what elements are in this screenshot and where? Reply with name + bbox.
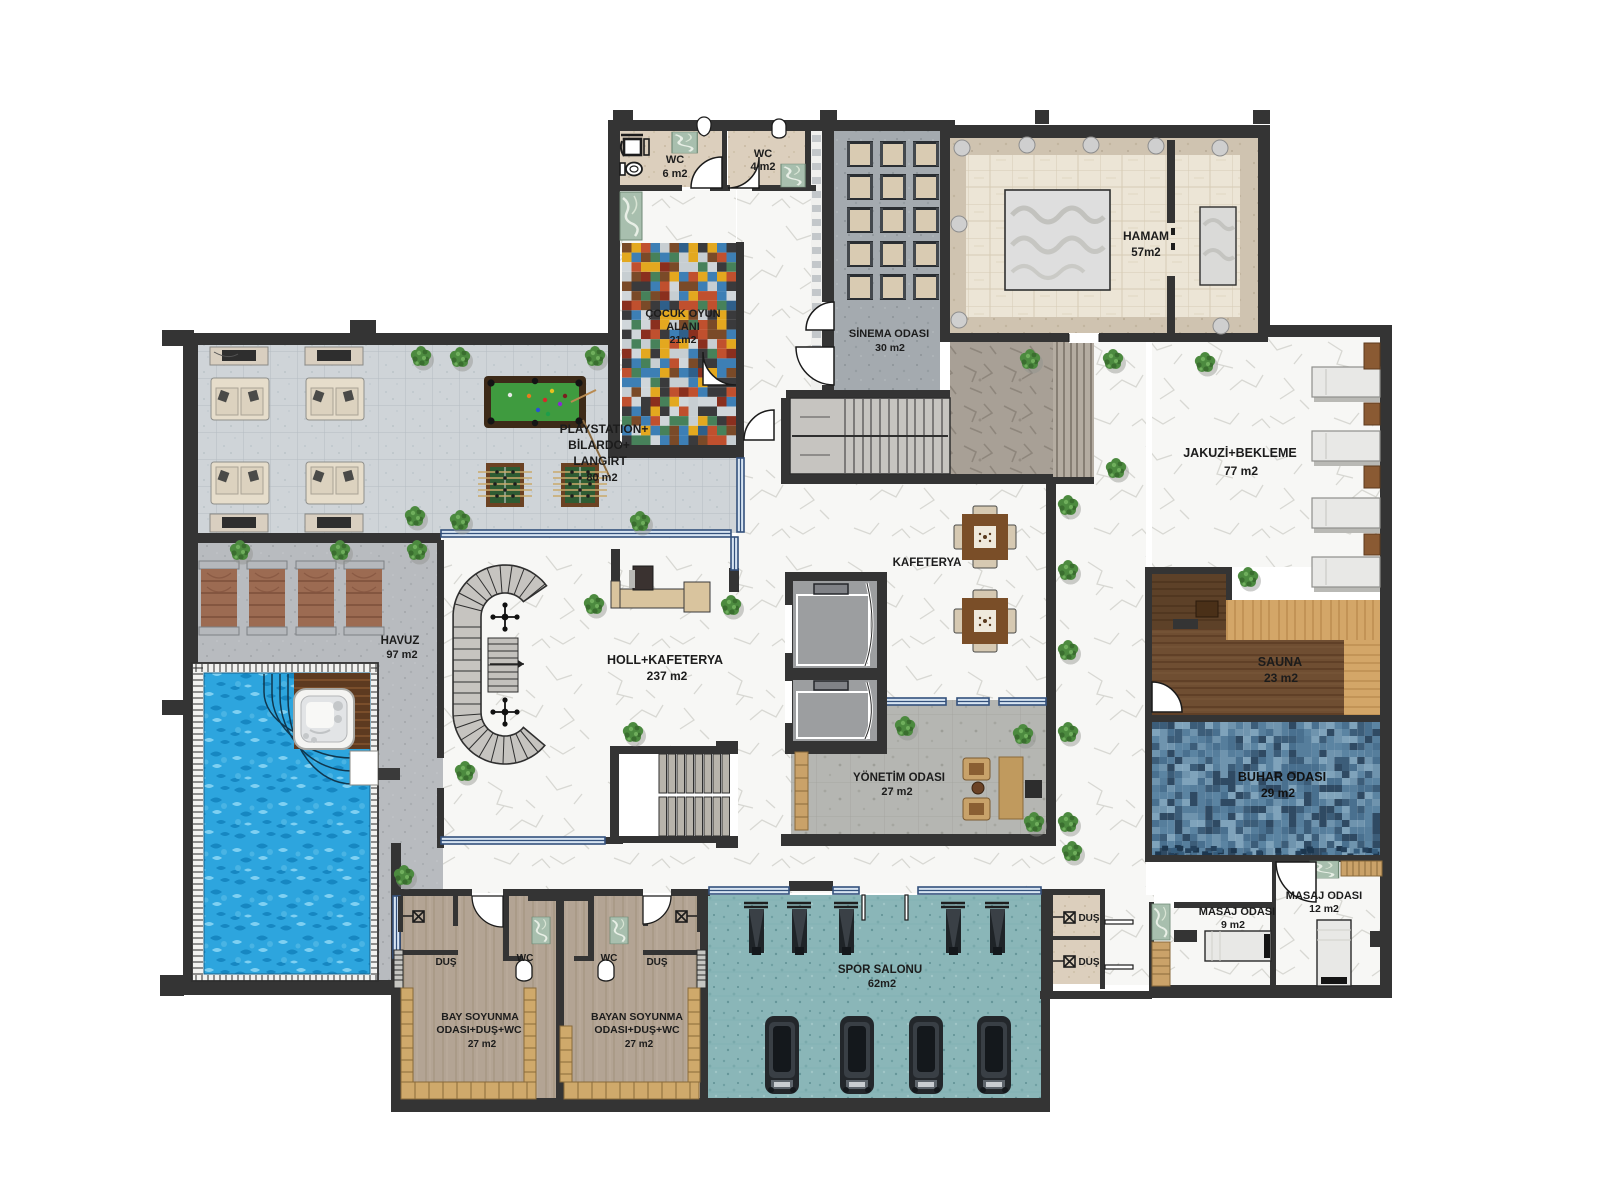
svg-text:SPOR SALONU: SPOR SALONU bbox=[838, 964, 922, 976]
svg-text:PLAYSTATION+: PLAYSTATION+ bbox=[560, 422, 649, 436]
svg-text:ODASI+DUŞ+WC: ODASI+DUŞ+WC bbox=[436, 1024, 522, 1036]
svg-text:30 m2: 30 m2 bbox=[875, 342, 905, 354]
svg-text:77 m2: 77 m2 bbox=[1224, 464, 1258, 478]
svg-text:KAFETERYA: KAFETERYA bbox=[893, 557, 962, 569]
svg-text:DUŞ: DUŞ bbox=[646, 957, 667, 968]
svg-text:ALANI: ALANI bbox=[666, 321, 700, 333]
svg-text:BUHAR ODASI: BUHAR ODASI bbox=[1238, 770, 1326, 784]
svg-text:MASAJ ODASI: MASAJ ODASI bbox=[1199, 906, 1275, 918]
svg-text:27 m2: 27 m2 bbox=[881, 786, 912, 798]
svg-text:WC: WC bbox=[601, 953, 618, 964]
svg-text:12 m2: 12 m2 bbox=[1309, 903, 1339, 915]
svg-text:29 m2: 29 m2 bbox=[1261, 786, 1295, 800]
svg-text:SAUNA: SAUNA bbox=[1258, 655, 1302, 669]
svg-text:23 m2: 23 m2 bbox=[1264, 671, 1298, 685]
svg-text:BAY SOYUNMA: BAY SOYUNMA bbox=[441, 1011, 519, 1023]
svg-text:4 m2: 4 m2 bbox=[750, 161, 775, 173]
svg-text:DUŞ: DUŞ bbox=[1078, 957, 1099, 968]
svg-text:HAMAM: HAMAM bbox=[1123, 229, 1169, 243]
svg-text:BAYAN SOYUNMA: BAYAN SOYUNMA bbox=[591, 1011, 683, 1023]
svg-text:BİLARDO+: BİLARDO+ bbox=[568, 437, 630, 452]
svg-text:YÖNETİM ODASI: YÖNETİM ODASI bbox=[853, 771, 945, 784]
svg-text:27 m2: 27 m2 bbox=[468, 1039, 497, 1050]
svg-text:80 m2: 80 m2 bbox=[586, 472, 617, 484]
svg-text:JAKUZİ+BEKLEME: JAKUZİ+BEKLEME bbox=[1183, 445, 1297, 460]
svg-text:ÇOCUK OYUN: ÇOCUK OYUN bbox=[645, 308, 720, 320]
svg-text:WC: WC bbox=[754, 148, 772, 160]
svg-text:97 m2: 97 m2 bbox=[386, 649, 417, 661]
svg-text:MASAJ ODASI: MASAJ ODASI bbox=[1286, 890, 1362, 902]
svg-text:6 m2: 6 m2 bbox=[662, 168, 687, 180]
svg-text:57m2: 57m2 bbox=[1131, 247, 1160, 259]
svg-text:237 m2: 237 m2 bbox=[647, 669, 688, 683]
svg-text:WC: WC bbox=[517, 953, 534, 964]
svg-text:HAVUZ: HAVUZ bbox=[381, 635, 420, 647]
svg-text:62m2: 62m2 bbox=[868, 978, 896, 990]
svg-text:27 m2: 27 m2 bbox=[625, 1039, 654, 1050]
svg-text:LANGIRT: LANGIRT bbox=[573, 454, 627, 468]
svg-text:21m2: 21m2 bbox=[670, 334, 697, 346]
svg-text:WC: WC bbox=[666, 154, 684, 166]
svg-text:SİNEMA ODASI: SİNEMA ODASI bbox=[849, 327, 929, 340]
svg-text:DUŞ: DUŞ bbox=[1078, 913, 1099, 924]
svg-text:DUŞ: DUŞ bbox=[435, 957, 456, 968]
svg-text:HOLL+KAFETERYA: HOLL+KAFETERYA bbox=[607, 653, 723, 667]
svg-text:ODASI+DUŞ+WC: ODASI+DUŞ+WC bbox=[594, 1024, 680, 1036]
svg-text:9 m2: 9 m2 bbox=[1221, 919, 1245, 931]
